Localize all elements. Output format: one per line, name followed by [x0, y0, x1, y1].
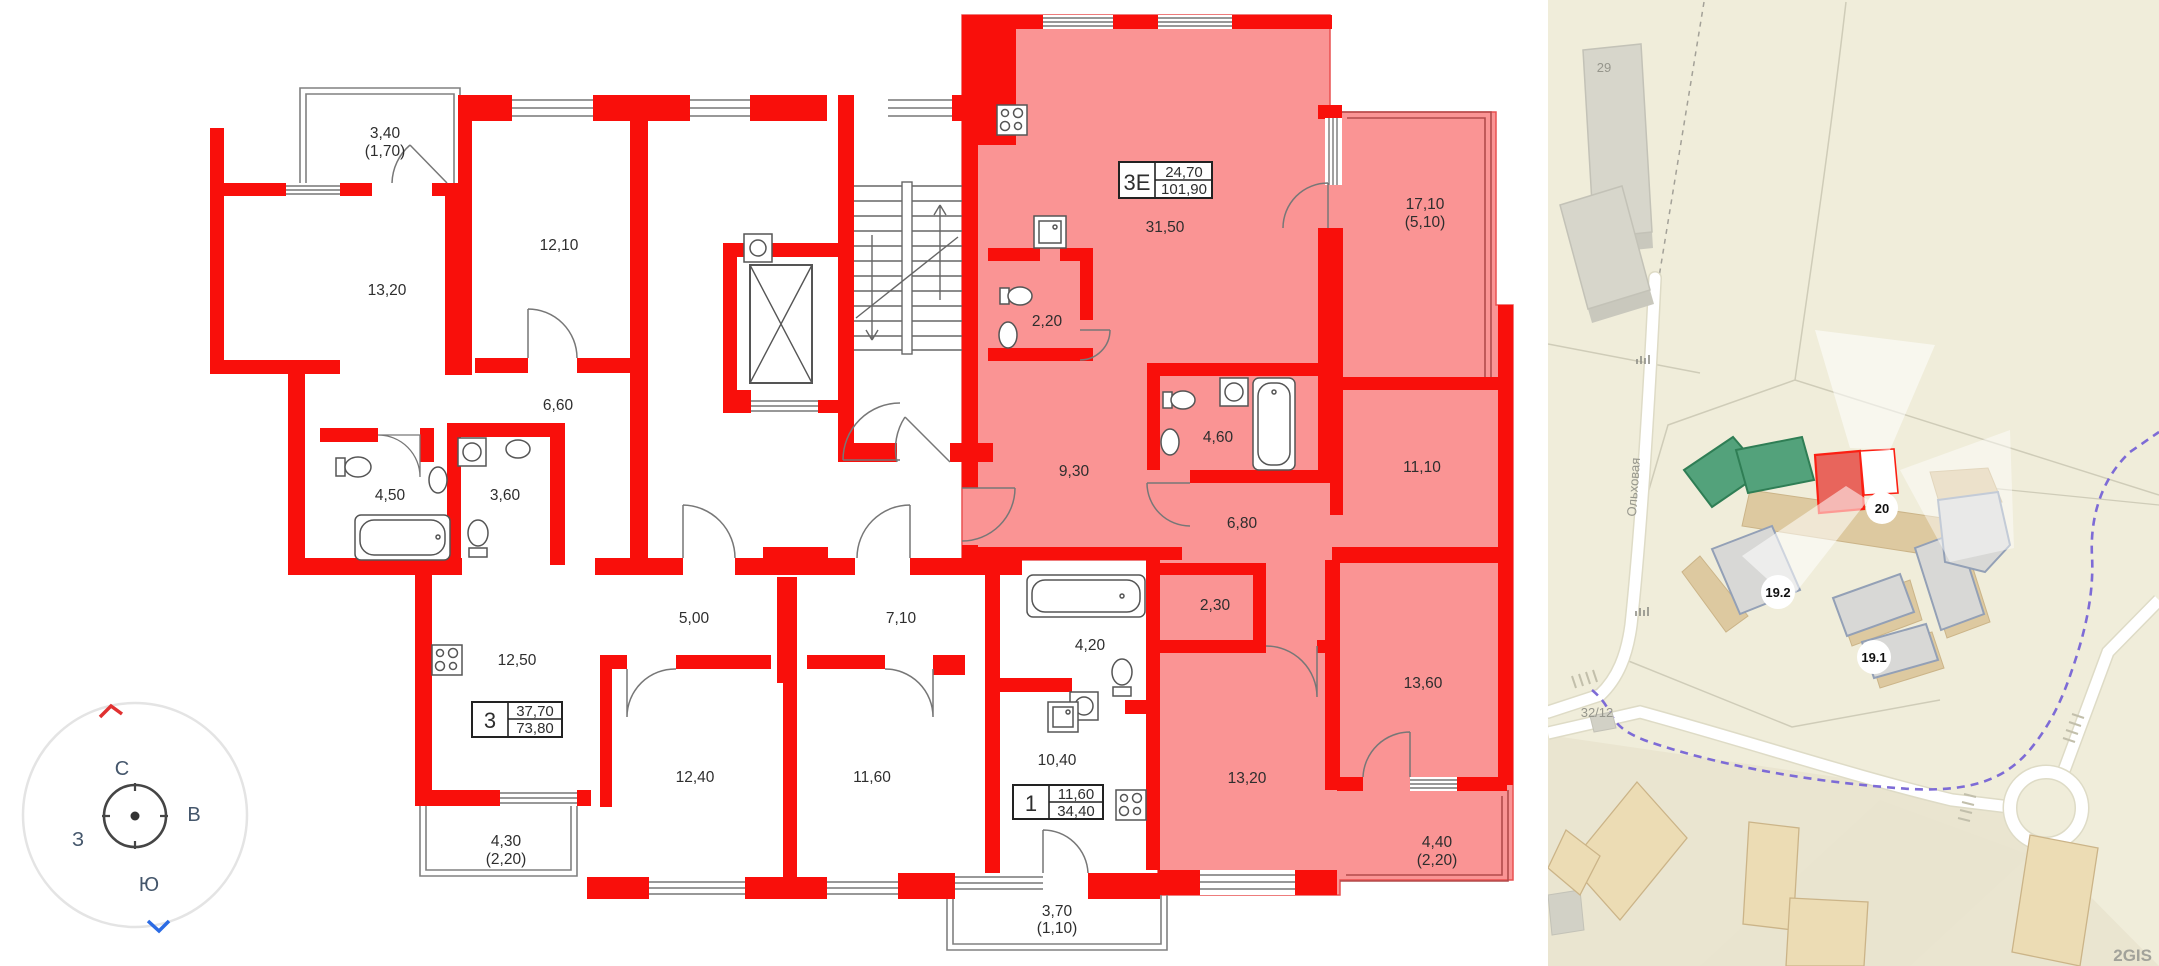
- room-label: (2,20): [1417, 852, 1458, 869]
- room-label: (5,10): [1405, 214, 1446, 231]
- washing-machine-icon: [1220, 378, 1248, 406]
- room-label: 6,80: [1227, 515, 1258, 532]
- room-label: 11,60: [853, 769, 891, 786]
- elevator: [750, 265, 812, 383]
- room-label: 2,20: [1032, 313, 1063, 330]
- room-label: 4,60: [1203, 429, 1234, 446]
- room-label: 5,00: [679, 610, 710, 627]
- badge-building-20[interactable]: 20: [1866, 492, 1898, 524]
- washing-machine-icon: [458, 438, 486, 466]
- kitchen-sink-icon: [1048, 702, 1078, 732]
- room-label: 31,50: [1146, 219, 1185, 236]
- room-label: 11,10: [1403, 459, 1441, 476]
- room-label: 2,30: [1200, 597, 1231, 614]
- room-label: 12,10: [540, 237, 579, 254]
- complex-building-white-section[interactable]: [1860, 449, 1898, 495]
- compass-north-label: С: [115, 758, 129, 780]
- room-label: 13,20: [1228, 770, 1267, 787]
- toilet-icon: [336, 457, 371, 477]
- compass: С В З Ю: [23, 703, 247, 931]
- svg-text:11,60: 11,60: [1058, 786, 1094, 803]
- room-label: 9,30: [1059, 463, 1090, 480]
- svg-text:101,90: 101,90: [1161, 181, 1207, 198]
- svg-text:19.1: 19.1: [1861, 650, 1886, 665]
- svg-text:34,40: 34,40: [1057, 803, 1095, 820]
- room-label: (1,70): [365, 143, 406, 160]
- stove-icon: [997, 105, 1027, 135]
- room-label: (1,10): [1037, 920, 1078, 937]
- compass-south-label: Ю: [139, 874, 159, 896]
- svg-text:19.2: 19.2: [1765, 585, 1790, 600]
- map-canvas[interactable]: 29 32/12 Ольховая 20 19.2 19.1 2GIS: [1548, 0, 2159, 966]
- staircase: [854, 182, 962, 354]
- compass-center-dot: [131, 812, 140, 821]
- svg-text:24,70: 24,70: [1165, 164, 1203, 181]
- sink-icon: [1161, 429, 1179, 455]
- room-label: 17,10: [1406, 196, 1445, 213]
- svg-text:3Е: 3Е: [1124, 170, 1151, 195]
- room-label: 3,60: [490, 487, 521, 504]
- svg-text:37,70: 37,70: [516, 703, 554, 720]
- map-attribution-logo[interactable]: 2GIS: [2113, 946, 2152, 965]
- svg-text:20: 20: [1875, 501, 1889, 516]
- room-label: 3,70: [1042, 903, 1073, 920]
- bathtub-icon: [355, 515, 450, 560]
- compass-south-arrow: [148, 921, 169, 931]
- room-label: 7,10: [886, 610, 917, 627]
- apartment-info-box-1[interactable]: 1 11,60 34,40: [1013, 785, 1103, 820]
- toilet-icon: [1112, 659, 1132, 696]
- sink-icon: [429, 467, 447, 493]
- toilet-icon: [1163, 391, 1195, 409]
- floorplan-drawing: 3,40 (1,70) 13,20 12,10 6,60 4,50 3,60 1…: [210, 15, 1513, 950]
- toilet-icon: [468, 520, 488, 557]
- room-label: 6,60: [543, 397, 574, 414]
- sink-icon: [999, 322, 1017, 348]
- room-label: 12,50: [498, 652, 537, 669]
- badge-building-19-1[interactable]: 19.1: [1857, 640, 1891, 674]
- room-label: 13,20: [368, 282, 407, 299]
- building-29-label: 29: [1597, 60, 1611, 75]
- svg-text:3: 3: [484, 708, 496, 733]
- bathtub-icon: [1027, 575, 1145, 617]
- room-label: 3,40: [370, 125, 401, 142]
- toilet-icon: [1000, 287, 1032, 305]
- room-label: 4,20: [1075, 637, 1106, 654]
- apartment-info-box-3E[interactable]: 3Е 24,70 101,90: [1119, 162, 1212, 198]
- bathtub-icon: [1253, 378, 1295, 470]
- room-label: 4,40: [1422, 834, 1453, 851]
- sink-icon: [506, 440, 530, 458]
- room-label: 13,60: [1404, 675, 1443, 692]
- compass-east-label: В: [187, 804, 200, 826]
- room-label: 4,30: [491, 833, 522, 850]
- room-label: 10,40: [1038, 752, 1077, 769]
- room-label: 4,50: [375, 487, 406, 504]
- plot-32-12-label: 32/12: [1581, 705, 1614, 720]
- badge-building-19-2[interactable]: 19.2: [1761, 575, 1795, 609]
- compass-west-label: З: [72, 829, 84, 851]
- floorplan-page: 29 32/12 Ольховая 20 19.2 19.1 2GIS: [0, 0, 2159, 966]
- room-label: (2,20): [486, 851, 527, 868]
- apartment-info-box-3[interactable]: 3 37,70 73,80: [472, 702, 562, 737]
- stove-icon: [432, 645, 462, 675]
- room-label: 12,40: [676, 769, 715, 786]
- stove-icon: [1116, 790, 1146, 820]
- svg-text:73,80: 73,80: [516, 720, 554, 737]
- svg-text:1: 1: [1025, 791, 1037, 816]
- garbage-chute-icon: [744, 234, 772, 262]
- kitchen-sink-icon: [1034, 216, 1066, 248]
